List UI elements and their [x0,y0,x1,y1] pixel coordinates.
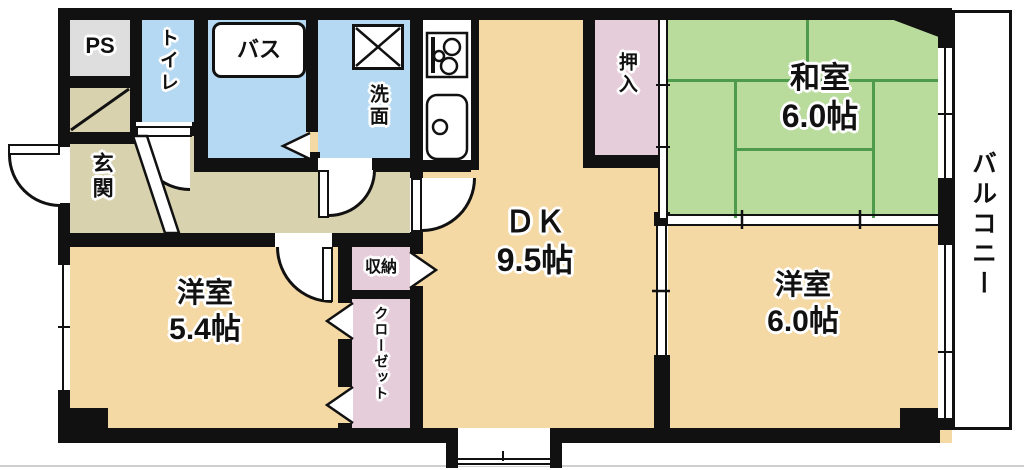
slide-dk-y60-l1 [656,226,658,355]
shoe-area-floor [70,88,130,132]
bathtub: バス [212,22,306,78]
wall-ps-right [130,20,142,122]
wall-right-2 [938,178,952,245]
washing-machine-pan [352,24,404,70]
shuno-label: 収納 [352,259,410,277]
wall-hall-bottom-a [58,233,275,247]
dk-label: ＤＫ 9.5帖 [460,206,610,278]
slide-dk-y60-l2 [665,226,667,355]
wall-right-1 [938,8,952,48]
yoshitsu54-door-leaf [322,247,333,302]
bath-label: バス [237,38,281,62]
wall-kitchen-right [471,8,479,170]
wall-washroom-kitchen [410,20,423,158]
bay-post-right [550,428,562,468]
bay-post-left [446,428,458,468]
bay-window-line2 [458,463,550,465]
bay-window-line1 [458,458,550,460]
fusuma-oshiire-l1 [658,20,660,218]
window-left [58,265,70,390]
wall-ps-bottom [70,76,130,88]
dk-size: 9.5帖 [460,243,610,278]
genkan-label: 玄関 [90,152,113,202]
wall-counter-end [423,160,471,172]
fusuma-washitsu-b1 [668,214,938,216]
wall-oshiire-left [583,8,595,155]
window-washitsu-line [944,48,946,178]
washroom-door-leaf [318,170,329,218]
hall-floor-2 [194,172,318,233]
wall-step-bottom-left [58,408,108,430]
wall-top [58,8,952,20]
entrance-door-swing [8,155,60,207]
wall-bottom-2 [562,428,940,443]
fusuma-oshiire-l2 [666,20,668,218]
washroom-label: 洗面 [366,84,387,128]
yoshitsu54-size: 5.4帖 [120,313,290,346]
window-yoshitsu60-line [944,245,946,418]
wall-bottom-1 [58,428,446,443]
washitsu-size: 6.0帖 [740,99,900,134]
wall-dk-yoshitsu60 [654,355,670,428]
oshiire-label: 押入 [615,52,636,96]
wall-bath-washroom [306,20,318,132]
wall-dkdoor-top [410,158,423,178]
entrance-door-leaf [8,144,60,155]
tatami-line-h2 [737,148,872,151]
wall-closet-right-2 [410,286,423,428]
toilet-label: トイレ [156,28,177,94]
wall-hall-bottom-b [332,233,423,247]
wall-genkan-top [58,132,136,144]
washitsu-name: 和室 [740,62,900,95]
yoshitsu60-label: 洋室 6.0帖 [718,270,888,338]
ps-label: PS [70,34,130,58]
doorway-yoshitsu54 [275,233,332,247]
wall-left-1 [58,8,70,147]
bay-window [458,428,550,466]
dk-name: ＤＫ [460,206,610,239]
kitchen-counter [423,20,471,160]
yoshitsu60-name: 洋室 [718,270,888,301]
yoshitsu54-label: 洋室 5.4帖 [120,278,290,346]
toilet-door-leaf [136,126,192,137]
balcony-label: バルコニー [968,150,996,300]
wall-closet-left-2 [338,339,352,387]
dk-door-leaf [411,178,422,232]
window-left-line [62,265,64,390]
wall-bath-bottom [194,158,318,172]
wall-closet-left-3 [338,423,352,428]
floor-plan: バス [0,0,1024,470]
fusuma-washitsu-b2 [668,224,938,226]
washitsu-label: 和室 6.0帖 [740,62,900,134]
wall-toilet-bath [194,20,208,158]
wall-right-3 [938,418,952,430]
yoshitsu54-name: 洋室 [120,278,290,309]
yoshitsu60-size: 6.0帖 [718,305,888,338]
wall-step-bottom-right [900,408,940,428]
wall-closet-right-1 [410,247,423,254]
closet-label: クローゼット [373,306,388,402]
wall-oshiire-bottom [583,155,658,168]
